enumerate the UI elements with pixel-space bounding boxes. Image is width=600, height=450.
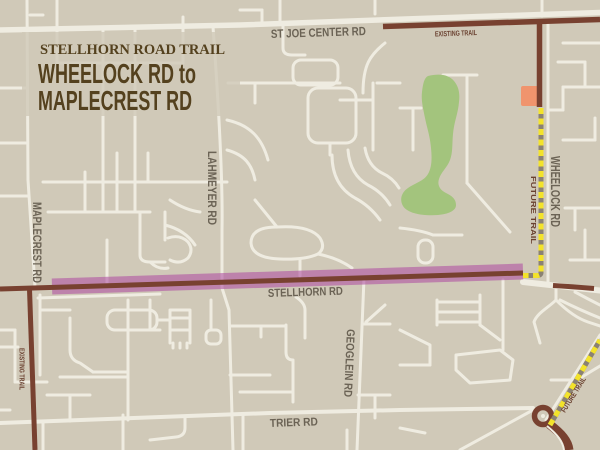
svg-text:MAPLECREST RD: MAPLECREST RD <box>30 202 42 283</box>
svg-text:STELLHORN ROAD TRAIL: STELLHORN ROAD TRAIL <box>40 42 225 58</box>
svg-text:MAPLECREST RD: MAPLECREST RD <box>38 85 192 116</box>
svg-text:WHEELOCK RD: WHEELOCK RD <box>548 156 563 227</box>
svg-text:LAHMEYER RD: LAHMEYER RD <box>205 151 217 225</box>
svg-text:TRIER RD: TRIER RD <box>270 416 318 430</box>
svg-text:FUTURE TRAIL: FUTURE TRAIL <box>529 176 538 245</box>
svg-text:ST JOE CENTER RD: ST JOE CENTER RD <box>271 24 367 41</box>
svg-text:EXISTING TRAIL: EXISTING TRAIL <box>18 348 27 390</box>
svg-text:STELLHORN RD: STELLHORN RD <box>268 286 343 300</box>
svg-text:EXISTING TRAIL: EXISTING TRAIL <box>435 28 478 38</box>
